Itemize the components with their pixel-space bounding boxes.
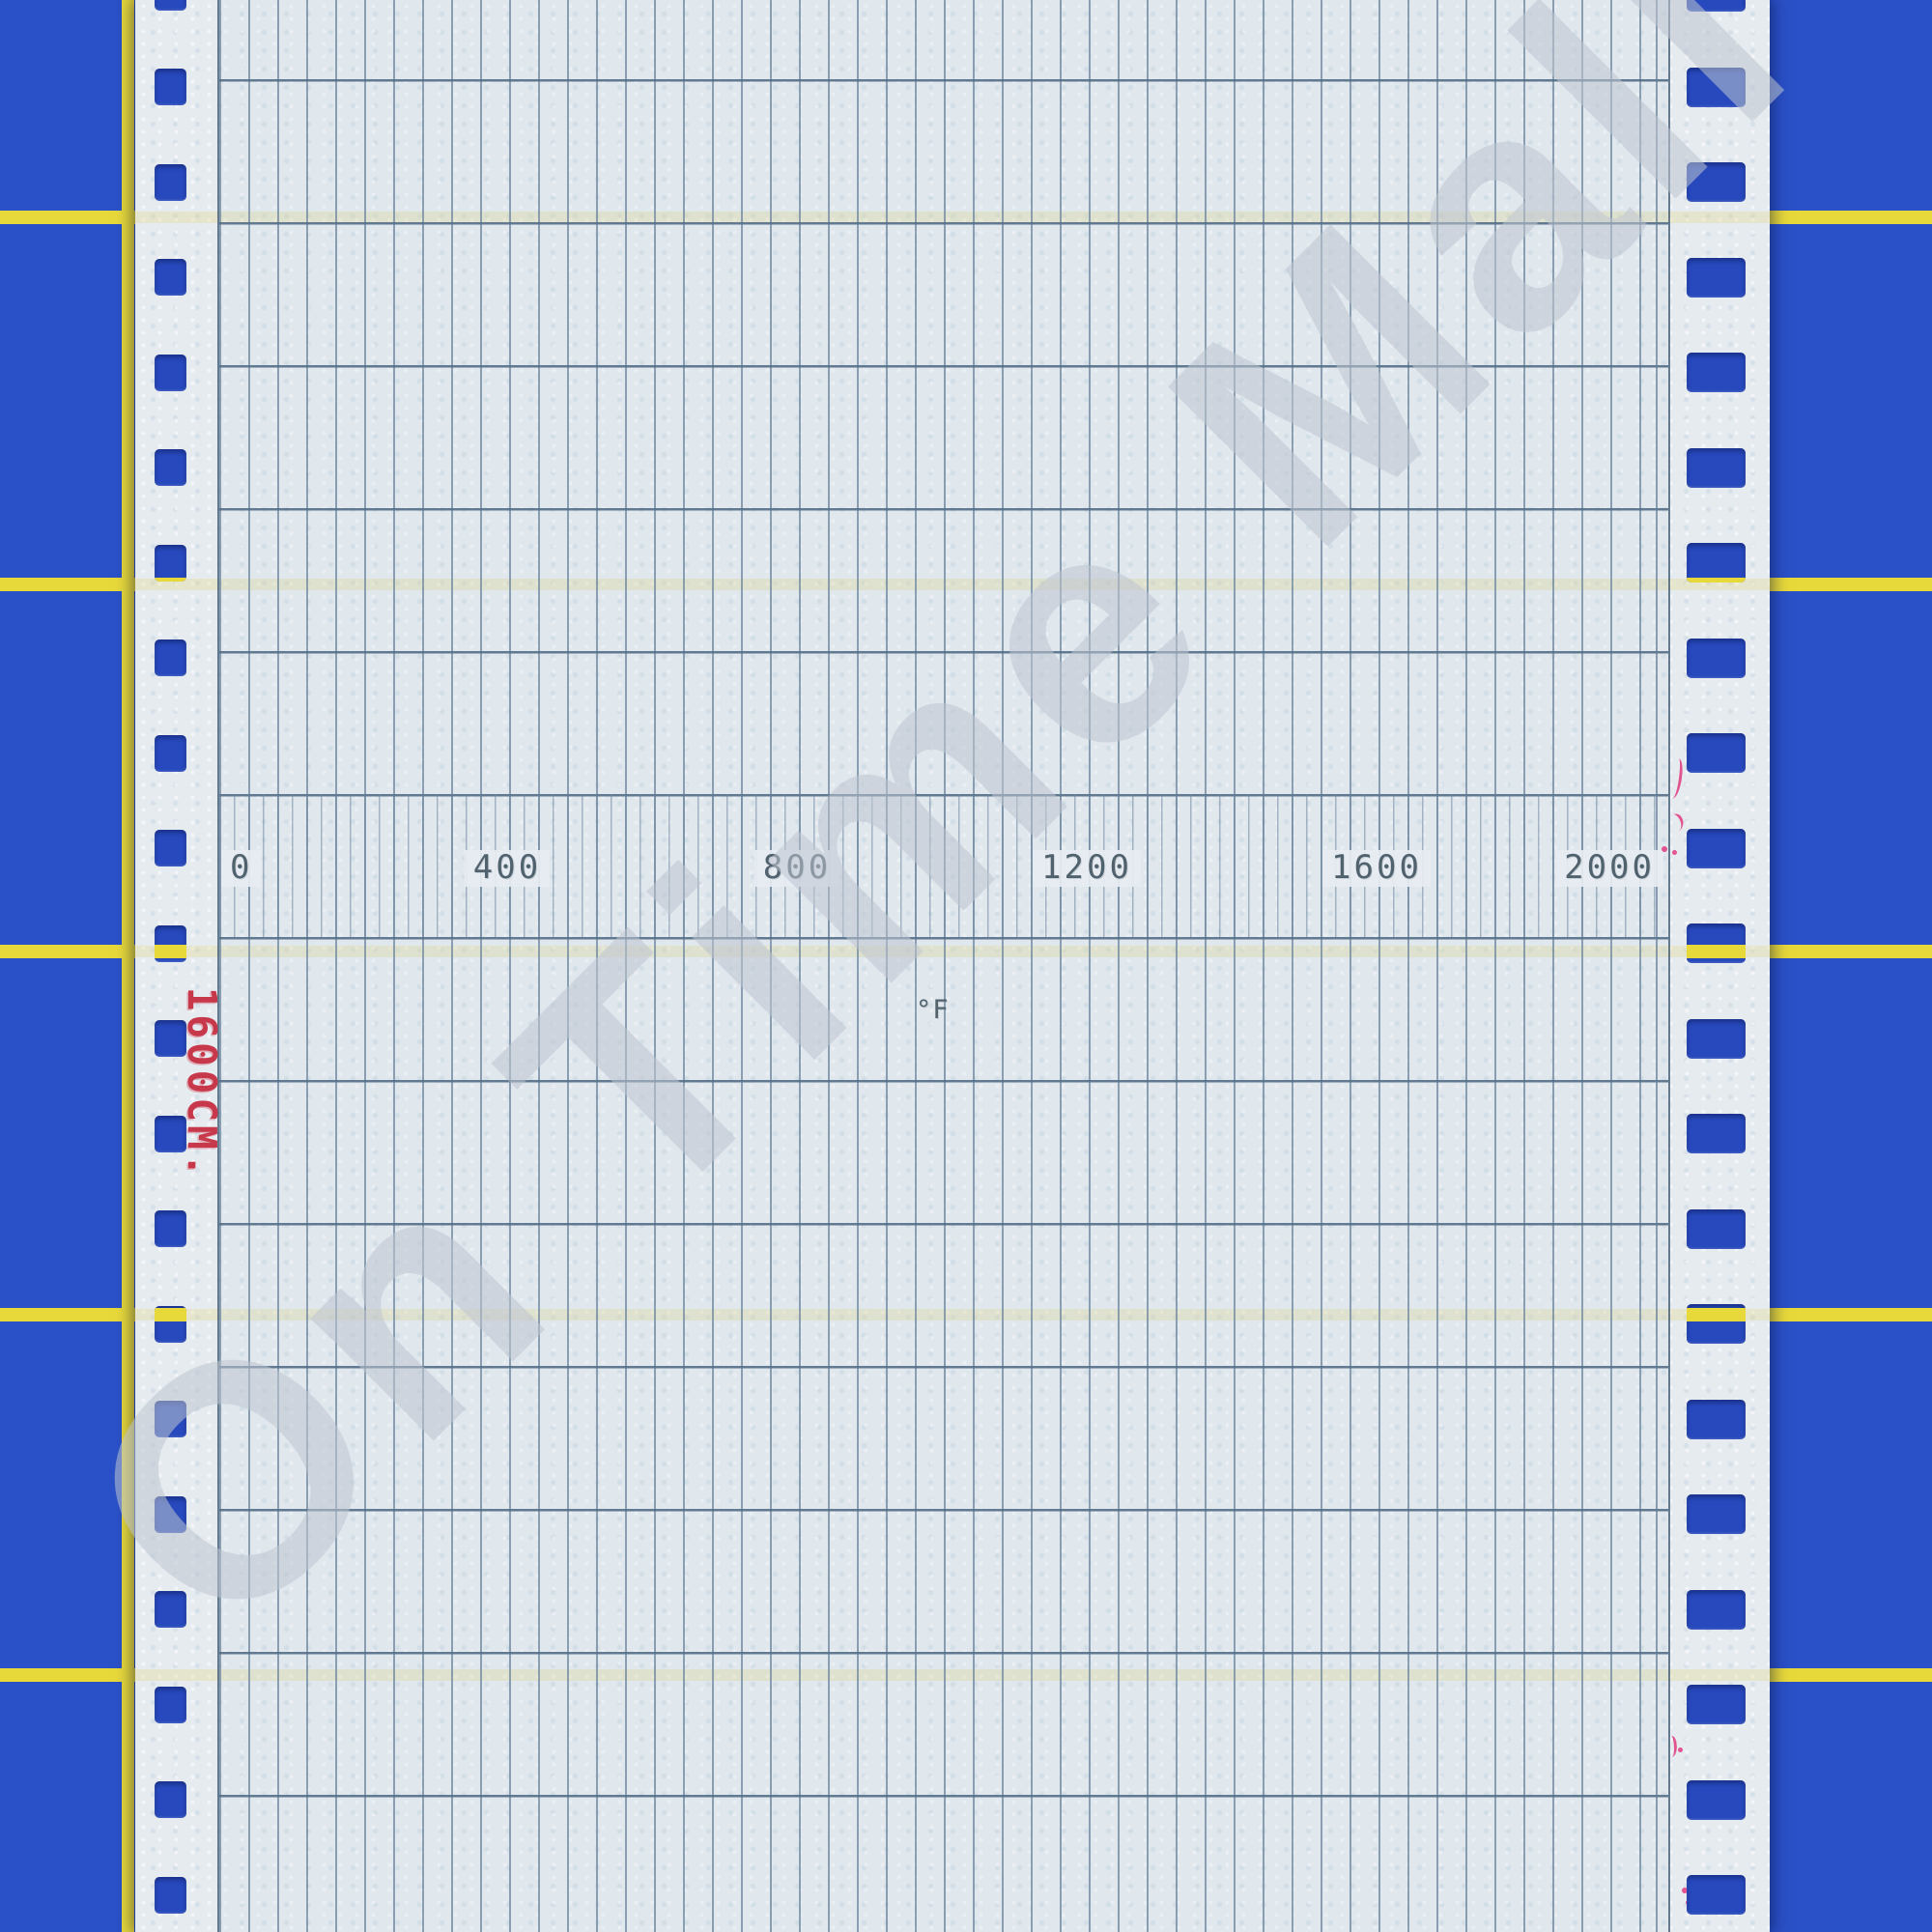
sprocket-hole-left bbox=[155, 639, 186, 676]
sprocket-hole-left bbox=[155, 1781, 186, 1818]
product-photo-scene: 0400800120016002000 °F 1600CM. On Time M… bbox=[0, 0, 1932, 1932]
sprocket-hole-left bbox=[155, 1687, 186, 1723]
sprocket-hole-right bbox=[1687, 1590, 1746, 1630]
sprocket-hole-left bbox=[155, 164, 186, 201]
sprocket-hole-left bbox=[155, 449, 186, 486]
sprocket-hole-right bbox=[1687, 639, 1746, 678]
sprocket-hole-left bbox=[155, 925, 186, 962]
sprocket-hole-left bbox=[155, 355, 186, 391]
sprocket-hole-right bbox=[1687, 1875, 1746, 1915]
sprocket-hole-left bbox=[155, 1591, 186, 1628]
axis-tick-label: 2000 bbox=[1555, 850, 1663, 887]
axis-tick-label: 1600 bbox=[1322, 850, 1431, 887]
sprocket-hole-right bbox=[1687, 448, 1746, 488]
mat-vertical-line bbox=[122, 0, 134, 1932]
chart-grid-area bbox=[217, 0, 1670, 1932]
sprocket-hole-right bbox=[1687, 258, 1746, 298]
axis-tick-label: 0 bbox=[221, 850, 261, 887]
scale-band-ticks bbox=[219, 794, 1668, 937]
sprocket-hole-left bbox=[155, 1496, 186, 1533]
sprocket-hole-left bbox=[155, 830, 186, 867]
sprocket-hole-right bbox=[1687, 0, 1746, 12]
yellow-line-through-hole bbox=[155, 1308, 186, 1321]
sprocket-hole-right bbox=[1687, 1780, 1746, 1820]
red-part-number-stamp: 1600CM. bbox=[179, 987, 225, 1181]
sprocket-hole-right bbox=[1687, 543, 1746, 582]
sprocket-hole-right bbox=[1687, 68, 1746, 107]
axis-tick-label: 800 bbox=[754, 850, 839, 887]
yellow-line-through-hole bbox=[1687, 1308, 1746, 1321]
pen-mark-dot bbox=[1662, 846, 1667, 852]
sprocket-hole-right bbox=[1687, 1209, 1746, 1249]
unit-label-fahrenheit: °F bbox=[916, 995, 950, 1025]
sprocket-hole-right bbox=[1687, 923, 1746, 963]
sprocket-hole-left bbox=[155, 1877, 186, 1914]
axis-tick-label: 1200 bbox=[1033, 850, 1141, 887]
sprocket-hole-right bbox=[1687, 829, 1746, 868]
sprocket-hole-left bbox=[155, 259, 186, 296]
sprocket-hole-right bbox=[1687, 1400, 1746, 1439]
sprocket-hole-right bbox=[1687, 162, 1746, 202]
sprocket-hole-left bbox=[155, 1210, 186, 1247]
pen-mark-dot bbox=[1678, 1747, 1683, 1752]
sprocket-hole-left bbox=[155, 735, 186, 772]
axis-tick-label: 400 bbox=[465, 850, 550, 887]
sprocket-hole-right bbox=[1687, 1304, 1746, 1344]
sprocket-hole-left bbox=[155, 1116, 186, 1152]
sprocket-hole-left bbox=[155, 69, 186, 105]
sprocket-hole-right bbox=[1687, 353, 1746, 392]
yellow-line-through-hole bbox=[1687, 945, 1746, 958]
sprocket-hole-right bbox=[1687, 1019, 1746, 1059]
sprocket-hole-left bbox=[155, 1020, 186, 1057]
yellow-line-through-hole bbox=[155, 578, 186, 582]
sprocket-hole-left bbox=[155, 0, 186, 11]
sprocket-hole-right bbox=[1687, 1494, 1746, 1534]
sprocket-hole-right bbox=[1687, 1685, 1746, 1724]
sprocket-hole-right bbox=[1687, 733, 1746, 773]
yellow-line-through-hole bbox=[1687, 578, 1746, 582]
sprocket-hole-right bbox=[1687, 1114, 1746, 1153]
sprocket-hole-left bbox=[155, 1306, 186, 1343]
pen-mark-dot bbox=[1672, 850, 1677, 855]
sprocket-hole-left bbox=[155, 1401, 186, 1437]
inner-right-border-line bbox=[1656, 0, 1658, 1932]
sprocket-hole-left bbox=[155, 545, 186, 582]
yellow-line-through-hole bbox=[155, 945, 186, 958]
